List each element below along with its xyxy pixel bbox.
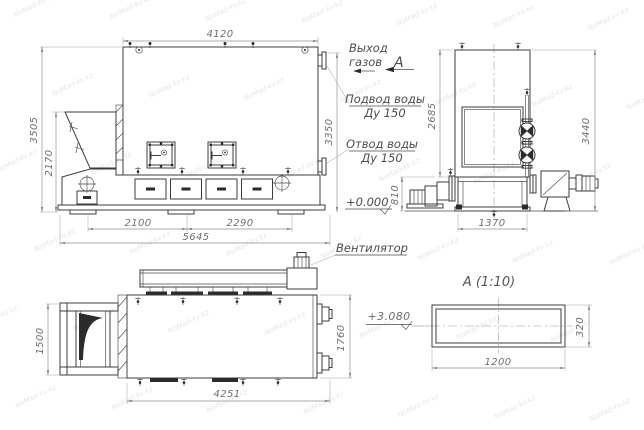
view-arrow-label: А: [393, 55, 404, 71]
fan-label: Вентилятор: [336, 241, 408, 255]
gas-outlet-label-line2: газов: [349, 55, 382, 69]
dim-side-height-total: 3505: [29, 116, 40, 143]
dim-side-height-hopper: 2170: [44, 149, 55, 176]
gas-outlet-label-line1: Выход: [349, 41, 388, 55]
valve: [519, 147, 535, 163]
dim-side-bottom-right: 2290: [226, 218, 253, 229]
dim-end-width-base: 1370: [478, 218, 505, 229]
elevation-duct-label: +3.080: [367, 310, 410, 323]
water-supply-label-line1: Подвод воды: [345, 92, 425, 106]
water-return-label-line2: Ду 150: [360, 151, 402, 165]
drawing-canvas: NoMad-kv.kz NoMad-kv.kz: [0, 0, 644, 430]
dim-plan-body-width: 1760: [336, 324, 347, 351]
dim-side-bottom-total: 5645: [182, 232, 209, 243]
water-return-label-line1: Отвод воды: [346, 137, 418, 151]
valve: [519, 123, 535, 139]
section-title: А (1:10): [462, 275, 515, 290]
dim-end-height-fan: 810: [390, 185, 401, 205]
dim-end-height-body: 2685: [427, 102, 438, 129]
dim-section-width: 1200: [484, 357, 511, 368]
dim-section-height: 320: [575, 317, 586, 337]
dim-plan-length: 4251: [213, 389, 240, 400]
water-supply-label-line2: Ду 150: [363, 106, 405, 120]
dim-side-top-length: 4120: [206, 29, 233, 40]
boiler-technical-drawing: NoMad-kv.kz NoMad-kv.kz: [0, 0, 644, 430]
elevation-zero-label: +0.000: [346, 195, 389, 209]
dim-plan-hopper-width: 1500: [35, 327, 46, 354]
dim-side-bottom-left: 2100: [124, 218, 151, 229]
dim-side-height-right: 3350: [324, 118, 335, 145]
dim-end-height-total: 3440: [581, 117, 592, 144]
